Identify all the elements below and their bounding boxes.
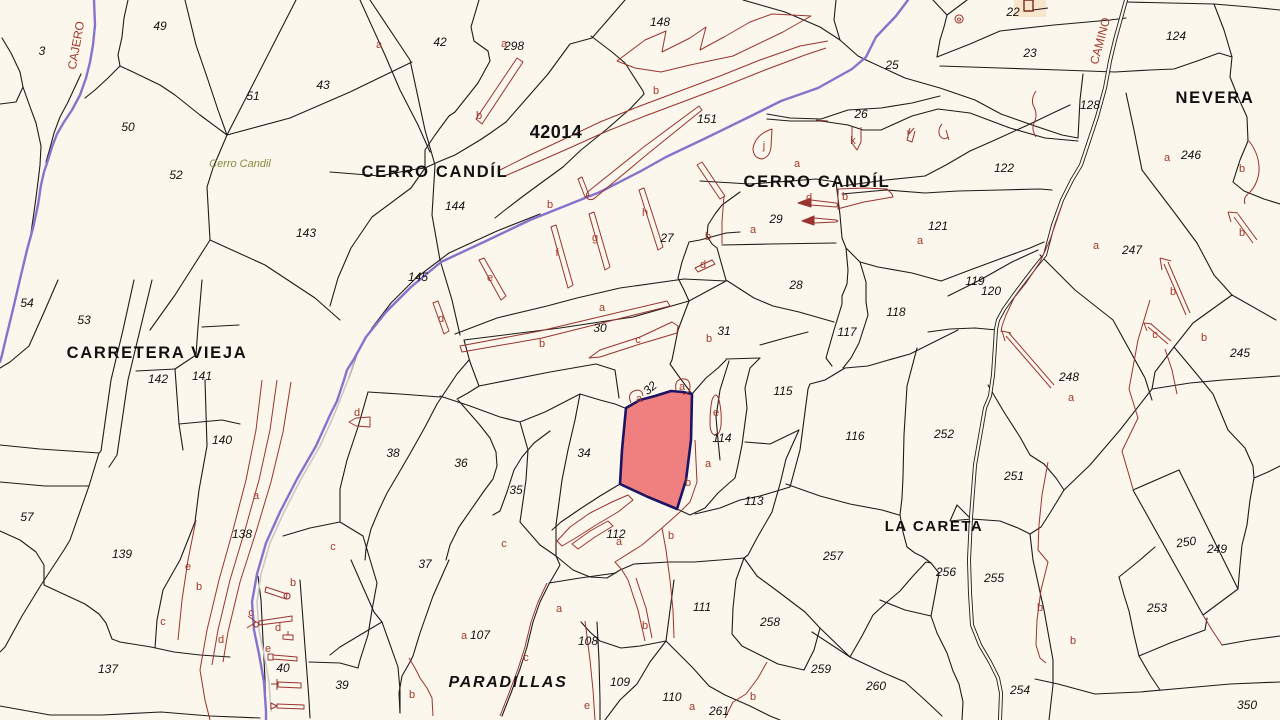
- svg-text:c: c: [160, 616, 166, 628]
- svg-text:42: 42: [433, 35, 447, 49]
- svg-text:50: 50: [121, 120, 135, 134]
- svg-text:254: 254: [1009, 683, 1030, 697]
- svg-text:a: a: [616, 536, 623, 548]
- svg-text:b: b: [1239, 227, 1245, 239]
- svg-text:a: a: [501, 38, 508, 50]
- svg-text:a: a: [794, 158, 801, 170]
- svg-text:54: 54: [20, 296, 34, 310]
- svg-text:261: 261: [708, 704, 729, 718]
- svg-text:251: 251: [1003, 469, 1024, 483]
- svg-text:e: e: [265, 643, 271, 655]
- svg-text:a: a: [1068, 392, 1075, 404]
- svg-text:143: 143: [296, 226, 316, 240]
- svg-text:b: b: [706, 333, 712, 345]
- svg-text:CERRO CANDÍL: CERRO CANDÍL: [744, 172, 891, 191]
- svg-text:l: l: [907, 129, 909, 141]
- svg-text:d: d: [700, 259, 706, 271]
- svg-text:CERRO CANDÍL: CERRO CANDÍL: [362, 162, 509, 181]
- svg-text:37: 37: [418, 557, 433, 571]
- svg-text:35: 35: [509, 483, 523, 497]
- svg-text:57: 57: [20, 510, 35, 524]
- svg-text:a: a: [461, 630, 468, 642]
- svg-text:115: 115: [773, 384, 792, 398]
- svg-text:42014: 42014: [530, 122, 583, 142]
- svg-text:k: k: [850, 135, 856, 147]
- svg-text:121: 121: [928, 219, 948, 233]
- svg-text:c: c: [248, 607, 254, 619]
- svg-text:a: a: [1164, 152, 1171, 164]
- svg-text:38: 38: [386, 446, 400, 460]
- svg-text:49: 49: [153, 19, 167, 33]
- svg-text:a: a: [679, 381, 686, 393]
- svg-text:148: 148: [650, 15, 670, 29]
- svg-text:245: 245: [1229, 346, 1250, 360]
- svg-text:23: 23: [1022, 46, 1037, 60]
- svg-text:26: 26: [853, 107, 868, 121]
- svg-text:b: b: [539, 338, 545, 350]
- svg-text:53: 53: [77, 313, 91, 327]
- svg-text:a: a: [376, 39, 383, 51]
- svg-text:142: 142: [148, 372, 168, 386]
- svg-text:22: 22: [1005, 5, 1020, 19]
- svg-text:31: 31: [717, 324, 730, 338]
- svg-text:137: 137: [98, 662, 119, 676]
- svg-text:138: 138: [232, 527, 252, 541]
- svg-text:b: b: [685, 477, 691, 489]
- svg-text:118: 118: [886, 305, 905, 319]
- svg-text:141: 141: [192, 369, 212, 383]
- svg-text:d: d: [218, 634, 224, 646]
- svg-text:PARADILLAS: PARADILLAS: [449, 674, 568, 691]
- svg-text:a: a: [636, 393, 643, 405]
- svg-text:NEVERA: NEVERA: [1176, 89, 1255, 107]
- svg-text:b: b: [409, 689, 415, 701]
- svg-text:b: b: [1170, 286, 1176, 298]
- svg-text:145: 145: [408, 270, 428, 284]
- svg-text:257: 257: [822, 549, 844, 563]
- svg-text:b: b: [1201, 332, 1207, 344]
- svg-text:c: c: [635, 334, 641, 346]
- svg-text:51: 51: [246, 89, 259, 103]
- svg-text:e: e: [713, 407, 719, 419]
- svg-text:b: b: [1037, 602, 1043, 614]
- svg-text:h: h: [642, 207, 648, 219]
- svg-text:b: b: [1070, 635, 1076, 647]
- svg-text:139: 139: [112, 547, 132, 561]
- svg-text:39: 39: [335, 678, 349, 692]
- svg-text:c: c: [330, 541, 336, 553]
- svg-text:117: 117: [837, 325, 857, 339]
- svg-text:107: 107: [470, 628, 491, 642]
- svg-text:3: 3: [39, 44, 46, 58]
- svg-text:a: a: [689, 701, 696, 713]
- svg-text:247: 247: [1121, 243, 1143, 257]
- svg-text:36: 36: [454, 456, 468, 470]
- svg-text:248: 248: [1058, 370, 1079, 384]
- svg-text:a: a: [253, 490, 260, 502]
- svg-text:a: a: [917, 235, 924, 247]
- svg-text:144: 144: [445, 199, 465, 213]
- svg-text:110: 110: [662, 690, 681, 704]
- svg-text:108: 108: [578, 634, 598, 648]
- svg-text:c: c: [501, 538, 507, 550]
- svg-text:111: 111: [693, 600, 711, 614]
- svg-text:b: b: [653, 85, 659, 97]
- svg-text:116: 116: [845, 429, 864, 443]
- svg-text:260: 260: [865, 679, 886, 693]
- svg-text:122: 122: [994, 161, 1014, 175]
- svg-text:27: 27: [659, 231, 675, 245]
- svg-text:b: b: [750, 691, 756, 703]
- svg-text:b: b: [196, 581, 202, 593]
- svg-text:g: g: [592, 232, 598, 244]
- svg-text:e: e: [584, 700, 590, 712]
- svg-text:b: b: [1239, 163, 1245, 175]
- svg-text:j: j: [762, 140, 765, 152]
- svg-text:a: a: [1093, 240, 1100, 252]
- svg-text:Cerro Candil: Cerro Candil: [209, 158, 271, 170]
- svg-text:b: b: [668, 530, 674, 542]
- svg-text:a: a: [750, 224, 757, 236]
- svg-text:249: 249: [1206, 542, 1227, 556]
- svg-text:c: c: [523, 652, 529, 664]
- svg-text:34: 34: [577, 446, 591, 460]
- svg-text:a: a: [599, 302, 606, 314]
- svg-text:128: 128: [1080, 98, 1100, 112]
- svg-text:d: d: [354, 407, 360, 419]
- svg-text:28: 28: [788, 278, 803, 292]
- svg-text:252: 252: [933, 427, 954, 441]
- svg-text:b: b: [547, 199, 553, 211]
- svg-text:256: 256: [935, 565, 956, 579]
- svg-text:b: b: [705, 231, 711, 243]
- svg-text:109: 109: [610, 675, 630, 689]
- svg-text:120: 120: [981, 284, 1001, 298]
- svg-text:b: b: [290, 577, 296, 589]
- svg-text:140: 140: [212, 433, 232, 447]
- svg-text:29: 29: [768, 212, 783, 226]
- svg-text:b: b: [642, 620, 648, 632]
- svg-text:124: 124: [1166, 29, 1186, 43]
- svg-text:e: e: [185, 561, 191, 573]
- svg-text:a: a: [705, 458, 712, 470]
- svg-text:25: 25: [884, 58, 899, 72]
- svg-text:d: d: [275, 622, 281, 634]
- svg-text:e: e: [487, 272, 493, 284]
- svg-text:259: 259: [810, 662, 831, 676]
- svg-text:40: 40: [276, 661, 290, 675]
- svg-text:255: 255: [983, 571, 1004, 585]
- svg-text:a: a: [556, 603, 563, 615]
- svg-text:246: 246: [1180, 148, 1201, 162]
- svg-text:b: b: [842, 191, 848, 203]
- svg-text:c: c: [1152, 329, 1158, 341]
- svg-text:113: 113: [744, 494, 763, 508]
- svg-text:d: d: [806, 192, 812, 204]
- svg-text:350: 350: [1237, 698, 1257, 712]
- svg-text:CARRETERA VIEJA: CARRETERA VIEJA: [67, 344, 248, 362]
- svg-text:43: 43: [316, 78, 330, 92]
- svg-text:114: 114: [712, 431, 731, 445]
- svg-text:d: d: [438, 313, 444, 325]
- svg-text:151: 151: [697, 112, 717, 126]
- svg-text:LA CARETA: LA CARETA: [885, 518, 984, 535]
- svg-text:250: 250: [1174, 534, 1197, 551]
- svg-text:30: 30: [593, 321, 607, 335]
- svg-text:52: 52: [169, 168, 183, 182]
- svg-text:b: b: [476, 110, 482, 122]
- svg-text:253: 253: [1146, 601, 1167, 615]
- svg-text:258: 258: [759, 615, 780, 629]
